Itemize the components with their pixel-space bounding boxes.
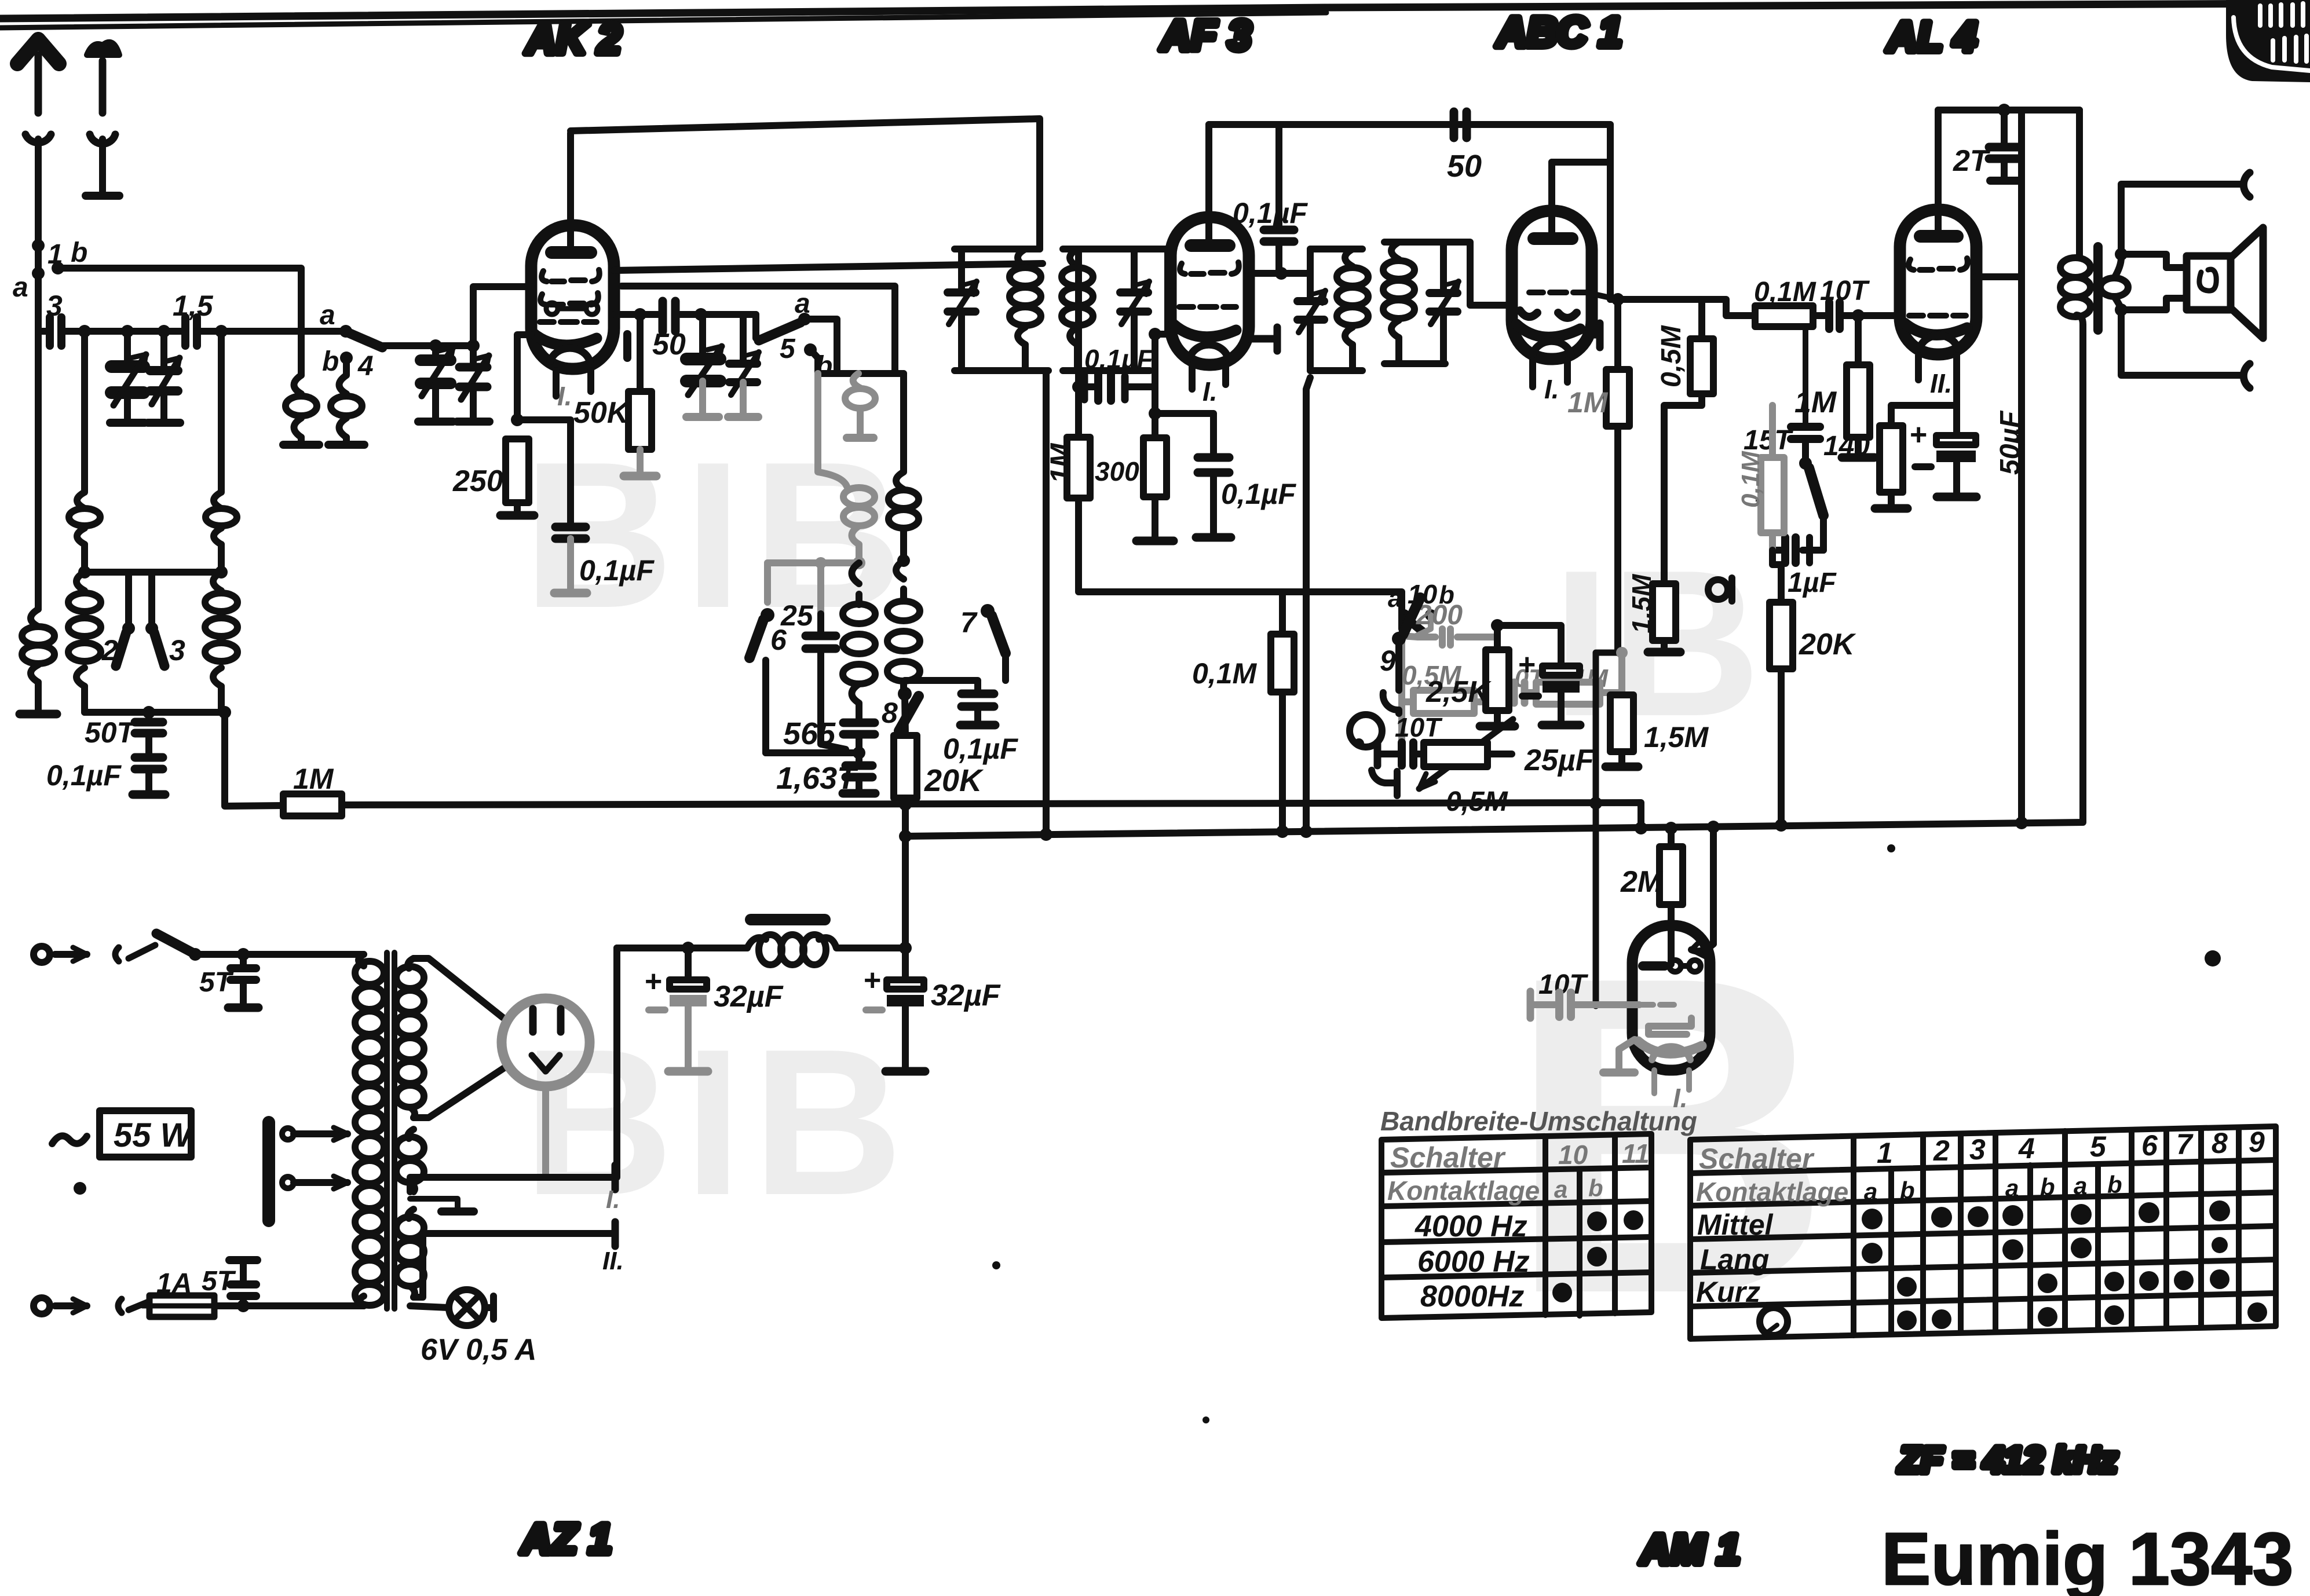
svg-text:6V 0,5 A: 6V 0,5 A — [421, 1333, 536, 1367]
svg-text:+: + — [863, 964, 880, 997]
svg-text:2M: 2M — [1620, 865, 1664, 899]
svg-text:b: b — [71, 237, 87, 268]
svg-text:10: 10 — [1558, 1140, 1588, 1170]
svg-text:8000Hz: 8000Hz — [1420, 1280, 1524, 1313]
svg-text:8: 8 — [2212, 1127, 2228, 1159]
svg-text:b: b — [2107, 1171, 2122, 1198]
svg-text:32µF: 32µF — [931, 979, 1001, 1012]
svg-text:8: 8 — [882, 697, 898, 729]
svg-text:4000 Hz: 4000 Hz — [1414, 1210, 1527, 1243]
svg-text:b: b — [1588, 1174, 1603, 1202]
svg-text:0,5M: 0,5M — [1656, 325, 1687, 387]
svg-text:5: 5 — [2090, 1130, 2107, 1163]
svg-text:1M: 1M — [1794, 386, 1837, 419]
svg-text:6: 6 — [2141, 1129, 2158, 1162]
svg-text:b: b — [1900, 1177, 1915, 1204]
svg-text:+: + — [644, 965, 661, 998]
svg-text:b: b — [322, 346, 339, 377]
svg-text:3: 3 — [46, 290, 63, 322]
svg-text:AF 3: AF 3 — [1160, 13, 1251, 59]
svg-text:2: 2 — [101, 634, 118, 667]
svg-text:II.: II. — [602, 1247, 624, 1275]
svg-text:1M: 1M — [1567, 386, 1609, 419]
svg-text:ZF = 412 kHz: ZF = 412 kHz — [1898, 1440, 2117, 1480]
svg-text:0,1µF: 0,1µF — [1084, 344, 1154, 374]
svg-text:15T: 15T — [1744, 425, 1793, 456]
svg-text:6000 Hz: 6000 Hz — [1417, 1245, 1530, 1279]
svg-text:5: 5 — [780, 334, 796, 364]
svg-text:50: 50 — [1447, 149, 1482, 184]
svg-text:0,1M: 0,1M — [1192, 657, 1258, 690]
svg-text:2: 2 — [1933, 1134, 1950, 1167]
svg-text:AK 2: AK 2 — [525, 16, 621, 63]
svg-text:32µF: 32µF — [714, 980, 784, 1013]
svg-text:9: 9 — [1380, 645, 1396, 677]
svg-text:9: 9 — [2249, 1126, 2265, 1158]
svg-text:300: 300 — [1095, 456, 1139, 486]
svg-text:+: + — [1909, 418, 1927, 452]
svg-text:I.: I. — [1202, 376, 1218, 407]
svg-text:50T: 50T — [85, 716, 137, 749]
svg-text:AZ 1: AZ 1 — [520, 1516, 612, 1562]
svg-text:1,63T: 1,63T — [776, 761, 858, 796]
svg-text:a: a — [795, 288, 810, 319]
svg-text:0,1M: 0,1M — [1754, 277, 1816, 308]
svg-text:a: a — [2005, 1174, 2019, 1202]
svg-text:+: + — [1518, 648, 1535, 682]
svg-text:1A: 1A — [156, 1268, 192, 1299]
svg-text:1,5M: 1,5M — [1626, 573, 1657, 634]
svg-text:20K: 20K — [1799, 628, 1856, 661]
svg-text:a: a — [2074, 1172, 2087, 1199]
svg-text:565: 565 — [783, 716, 836, 751]
svg-text:I.: I. — [1544, 374, 1559, 404]
svg-text:1: 1 — [1877, 1137, 1893, 1169]
svg-text:0,1µF: 0,1µF — [1233, 197, 1308, 229]
svg-text:55 W: 55 W — [114, 1117, 195, 1154]
svg-text:Kontaktlage: Kontaktlage — [1387, 1176, 1540, 1206]
svg-text:1µF: 1µF — [1788, 568, 1837, 598]
svg-text:4: 4 — [2018, 1132, 2035, 1165]
svg-text:250: 250 — [452, 464, 503, 498]
svg-text:2T: 2T — [1953, 144, 1991, 178]
svg-text:25: 25 — [780, 599, 814, 632]
svg-text:a: a — [320, 300, 335, 331]
svg-text:0,1µF: 0,1µF — [579, 554, 655, 587]
svg-text:20K: 20K — [924, 763, 984, 798]
svg-text:0,1µF: 0,1µF — [46, 759, 122, 792]
svg-text:4: 4 — [357, 351, 374, 382]
svg-text:II.: II. — [1930, 368, 1952, 398]
svg-text:I.: I. — [606, 1185, 620, 1214]
svg-text:ABC 1: ABC 1 — [1496, 9, 1622, 56]
svg-text:AL 4: AL 4 — [1886, 14, 1977, 60]
svg-text:Lang: Lang — [1700, 1243, 1769, 1276]
svg-text:BIB: BIB — [523, 1006, 913, 1239]
svg-text:1,5M: 1,5M — [1644, 721, 1709, 753]
svg-text:3: 3 — [169, 634, 185, 667]
svg-text:2,5K: 2,5K — [1426, 675, 1492, 709]
svg-text:Schalter: Schalter — [1699, 1143, 1815, 1175]
svg-text:a: a — [1388, 584, 1402, 613]
svg-text:0,1M: 0,1M — [1737, 451, 1765, 508]
svg-text:I.: I. — [557, 381, 572, 411]
svg-text:3: 3 — [1969, 1133, 1986, 1166]
svg-text:AM 1: AM 1 — [1639, 1527, 1740, 1573]
svg-text:140: 140 — [1823, 431, 1870, 462]
svg-text:0,1µF: 0,1µF — [1221, 478, 1296, 510]
svg-text:10T: 10T — [1820, 276, 1870, 306]
svg-text:Schalter: Schalter — [1390, 1141, 1506, 1174]
svg-text:50µF: 50µF — [1995, 410, 2026, 475]
svg-text:50K: 50K — [573, 396, 631, 430]
svg-text:Mittel: Mittel — [1697, 1209, 1774, 1241]
svg-text:b: b — [2040, 1173, 2055, 1200]
svg-text:10T: 10T — [1538, 969, 1588, 1000]
svg-text:Kontaktlage: Kontaktlage — [1696, 1177, 1848, 1207]
svg-text:a: a — [13, 272, 28, 303]
svg-text:0,1µF: 0,1µF — [943, 733, 1018, 765]
svg-text:11: 11 — [1622, 1139, 1650, 1169]
svg-text:10T: 10T — [1395, 712, 1443, 742]
svg-text:Eumig 1343: Eumig 1343 — [1881, 1518, 2293, 1596]
svg-text:1M: 1M — [1044, 442, 1077, 484]
svg-text:7: 7 — [960, 606, 978, 639]
svg-text:1M: 1M — [293, 763, 334, 795]
svg-text:25µF: 25µF — [1524, 744, 1595, 777]
svg-text:Kurz: Kurz — [1696, 1276, 1760, 1308]
svg-text:a: a — [1864, 1178, 1877, 1205]
svg-text:7: 7 — [2176, 1128, 2194, 1161]
svg-text:a: a — [1554, 1176, 1567, 1203]
svg-text:I.: I. — [1673, 1083, 1688, 1113]
svg-text:1,5: 1,5 — [173, 290, 214, 322]
